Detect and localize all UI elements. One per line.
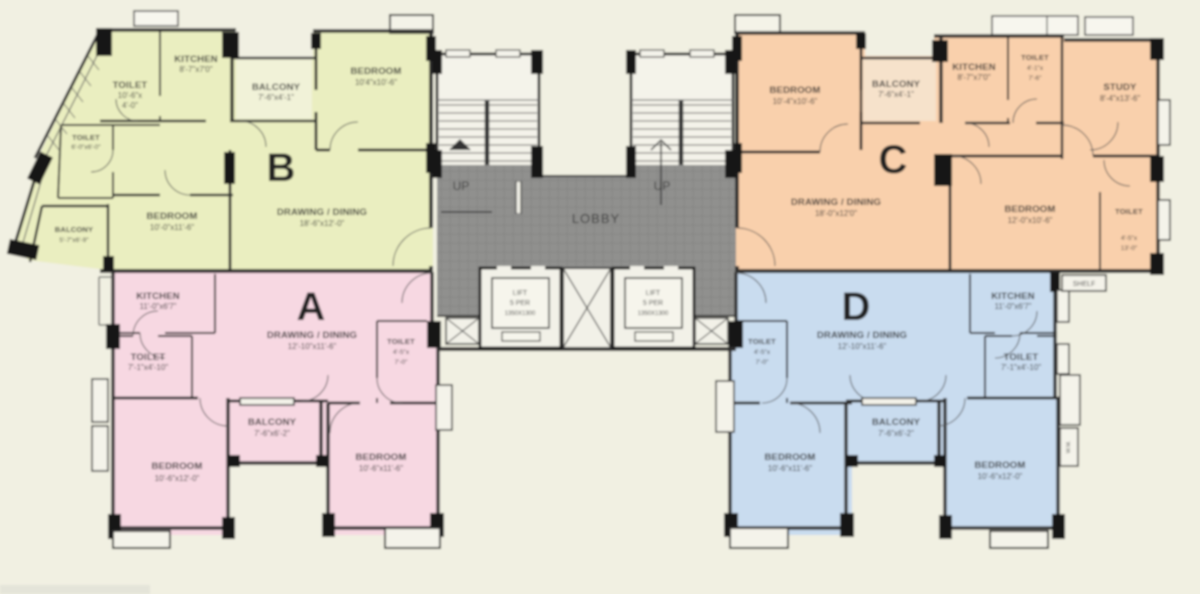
svg-text:DRAWING / DINING: DRAWING / DINING bbox=[277, 207, 367, 218]
svg-text:TOILET: TOILET bbox=[113, 80, 148, 91]
svg-text:5 PER: 5 PER bbox=[510, 300, 530, 307]
svg-text:10'-6"x11'-6": 10'-6"x11'-6" bbox=[359, 464, 403, 473]
svg-text:LOBBY: LOBBY bbox=[572, 211, 620, 226]
svg-text:BALCONY: BALCONY bbox=[248, 417, 297, 428]
svg-text:TOILET: TOILET bbox=[1115, 207, 1143, 216]
svg-text:BALCONY: BALCONY bbox=[872, 417, 921, 428]
svg-text:KITCHEN: KITCHEN bbox=[952, 62, 996, 73]
svg-text:DRAWING / DINING: DRAWING / DINING bbox=[791, 197, 881, 208]
svg-text:4'-0": 4'-0" bbox=[122, 101, 138, 110]
svg-text:7'-6"x4'-1": 7'-6"x4'-1" bbox=[878, 90, 914, 99]
svg-text:BALCONY: BALCONY bbox=[252, 82, 301, 93]
svg-text:TOILET: TOILET bbox=[131, 352, 166, 363]
svg-text:UP: UP bbox=[654, 179, 671, 193]
svg-text:1350X1300: 1350X1300 bbox=[638, 311, 669, 317]
svg-text:BEDROOM: BEDROOM bbox=[146, 211, 197, 222]
svg-text:7'-0": 7'-0" bbox=[756, 359, 770, 366]
svg-text:8'-4"x13'-6": 8'-4"x13'-6" bbox=[1100, 94, 1140, 103]
svg-text:BEDROOM: BEDROOM bbox=[355, 452, 406, 463]
svg-text:DRAWING / DINING: DRAWING / DINING bbox=[267, 330, 357, 341]
svg-text:B: B bbox=[267, 146, 296, 190]
svg-text:BEDROOM: BEDROOM bbox=[769, 85, 820, 96]
svg-text:A: A bbox=[297, 285, 326, 329]
svg-text:C: C bbox=[879, 138, 908, 182]
svg-text:4'-5"x: 4'-5"x bbox=[1121, 235, 1138, 242]
svg-text:7'-6": 7'-6" bbox=[1029, 75, 1043, 82]
svg-text:LIFT: LIFT bbox=[513, 290, 528, 297]
svg-text:BEDROOM: BEDROOM bbox=[974, 460, 1025, 471]
svg-text:12'-10"x11'-6": 12'-10"x11'-6" bbox=[288, 342, 337, 351]
svg-text:BALCONY: BALCONY bbox=[872, 79, 921, 90]
svg-text:13'-0": 13'-0" bbox=[1121, 245, 1138, 252]
svg-text:UP: UP bbox=[453, 179, 470, 193]
svg-text:10'-6"x12'-0": 10'-6"x12'-0" bbox=[155, 474, 200, 483]
svg-text:BEDROOM: BEDROOM bbox=[764, 452, 815, 463]
svg-text:11'-0"x6'7": 11'-0"x6'7" bbox=[139, 302, 176, 311]
svg-text:SHELF: SHELF bbox=[1073, 281, 1096, 288]
svg-text:4'-5"x: 4'-5"x bbox=[393, 349, 410, 356]
svg-text:10'-0"x11'-6": 10'-0"x11'-6" bbox=[150, 223, 194, 232]
svg-text:7'-6"x6'-2": 7'-6"x6'-2" bbox=[878, 429, 914, 438]
svg-text:7'-6"x4'-1": 7'-6"x4'-1" bbox=[258, 93, 294, 102]
svg-text:STUDY: STUDY bbox=[1103, 82, 1137, 93]
svg-text:5'-7"x6'-9": 5'-7"x6'-9" bbox=[59, 237, 89, 244]
svg-text:12'-10"x11'-6": 12'-10"x11'-6" bbox=[838, 342, 887, 351]
svg-text:BEDROOM: BEDROOM bbox=[350, 66, 401, 77]
svg-text:7'-6"x6'-2": 7'-6"x6'-2" bbox=[254, 429, 290, 438]
svg-text:KITCHEN: KITCHEN bbox=[136, 291, 180, 302]
svg-text:BALCONY: BALCONY bbox=[55, 225, 93, 234]
svg-text:BEDROOM: BEDROOM bbox=[151, 461, 202, 472]
svg-text:4'-5"x: 4'-5"x bbox=[754, 349, 771, 356]
svg-text:10'-6"x12'-0": 10'-6"x12'-0" bbox=[978, 472, 1023, 481]
svg-text:8'-7"x7'0": 8'-7"x7'0" bbox=[957, 73, 990, 82]
svg-text:LIFT: LIFT bbox=[646, 290, 661, 297]
svg-text:18'-0"x12'0": 18'-0"x12'0" bbox=[815, 209, 857, 218]
svg-text:10'-6"x: 10'-6"x bbox=[118, 91, 142, 100]
svg-text:7'-1"x4'-10": 7'-1"x4'-10" bbox=[1001, 363, 1041, 372]
svg-text:KITCHEN: KITCHEN bbox=[991, 291, 1035, 302]
svg-text:6'-0"x6'-0": 6'-0"x6'-0" bbox=[71, 144, 101, 151]
svg-text:TOILET: TOILET bbox=[1021, 53, 1049, 62]
svg-text:1350X1300: 1350X1300 bbox=[505, 311, 536, 317]
svg-text:DRAWING / DINING: DRAWING / DINING bbox=[817, 330, 907, 341]
svg-text:10'-4"x10'-6": 10'-4"x10'-6" bbox=[773, 97, 818, 106]
svg-text:10'4"x10'-6": 10'4"x10'-6" bbox=[355, 78, 397, 87]
svg-text:7'-1"x4'-10": 7'-1"x4'-10" bbox=[128, 363, 168, 372]
svg-text:12'-0"x10'-6": 12'-0"x10'-6" bbox=[1008, 216, 1053, 225]
svg-text:D: D bbox=[842, 285, 871, 329]
svg-text:7'-0": 7'-0" bbox=[395, 359, 409, 366]
svg-text:W.M.: W.M. bbox=[1066, 440, 1072, 453]
svg-text:TOILET: TOILET bbox=[748, 337, 776, 346]
svg-text:BEDROOM: BEDROOM bbox=[1004, 204, 1055, 215]
svg-text:TOILET: TOILET bbox=[387, 337, 415, 346]
svg-text:10'-6"x11'-6": 10'-6"x11'-6" bbox=[768, 464, 812, 473]
svg-text:4'-1"x: 4'-1"x bbox=[1027, 65, 1044, 72]
svg-text:KITCHEN: KITCHEN bbox=[174, 54, 218, 65]
svg-text:TOILET: TOILET bbox=[72, 133, 100, 142]
svg-text:8'-7"x7'0": 8'-7"x7'0" bbox=[179, 65, 212, 74]
svg-text:18'-6"x12'-0": 18'-6"x12'-0" bbox=[300, 219, 345, 228]
svg-text:11'-0"x6'7": 11'-0"x6'7" bbox=[994, 302, 1031, 311]
svg-text:5 PER: 5 PER bbox=[643, 300, 663, 307]
svg-text:TOILET: TOILET bbox=[1004, 352, 1039, 363]
